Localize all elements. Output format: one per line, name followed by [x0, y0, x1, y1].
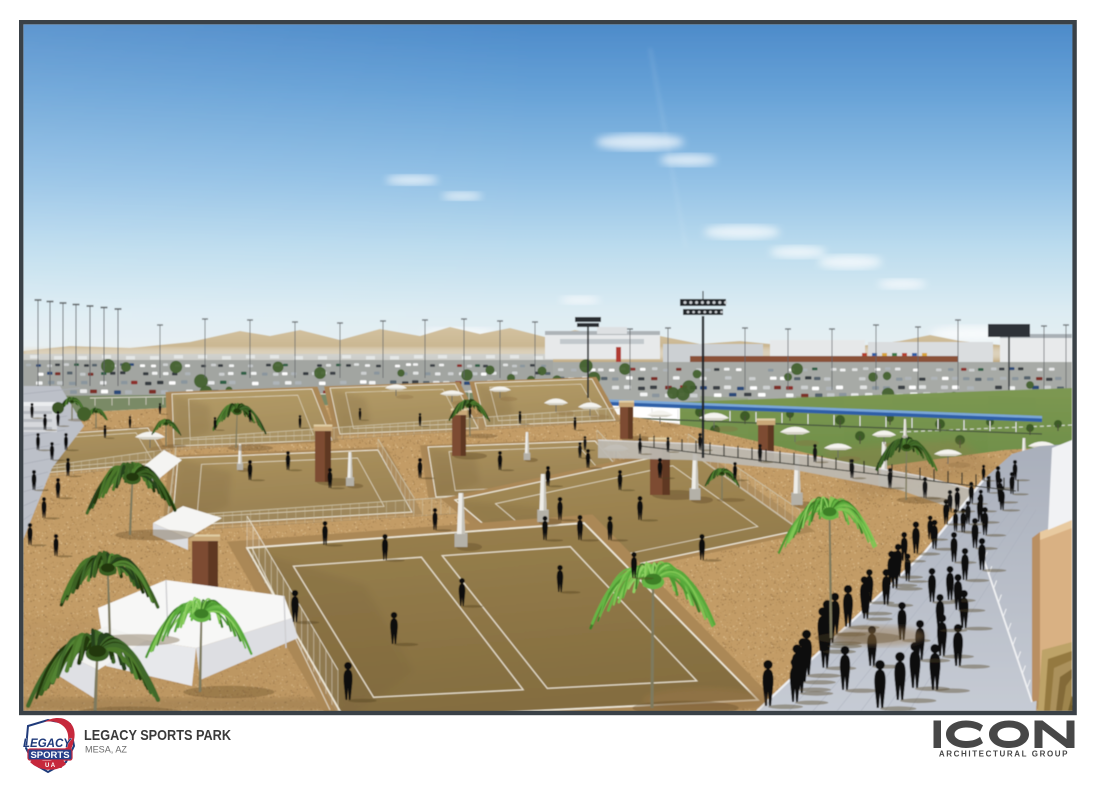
svg-text:SPORTS: SPORTS	[30, 750, 69, 761]
svg-text:ARCHITECTURAL GROUP: ARCHITECTURAL GROUP	[939, 750, 1069, 759]
svg-text:LEGACY SPORTS PARK: LEGACY SPORTS PARK	[84, 727, 231, 744]
svg-text:U A: U A	[45, 763, 56, 769]
svg-text:LEGACY: LEGACY	[23, 738, 72, 750]
svg-text:MESA, AZ: MESA, AZ	[85, 745, 127, 756]
